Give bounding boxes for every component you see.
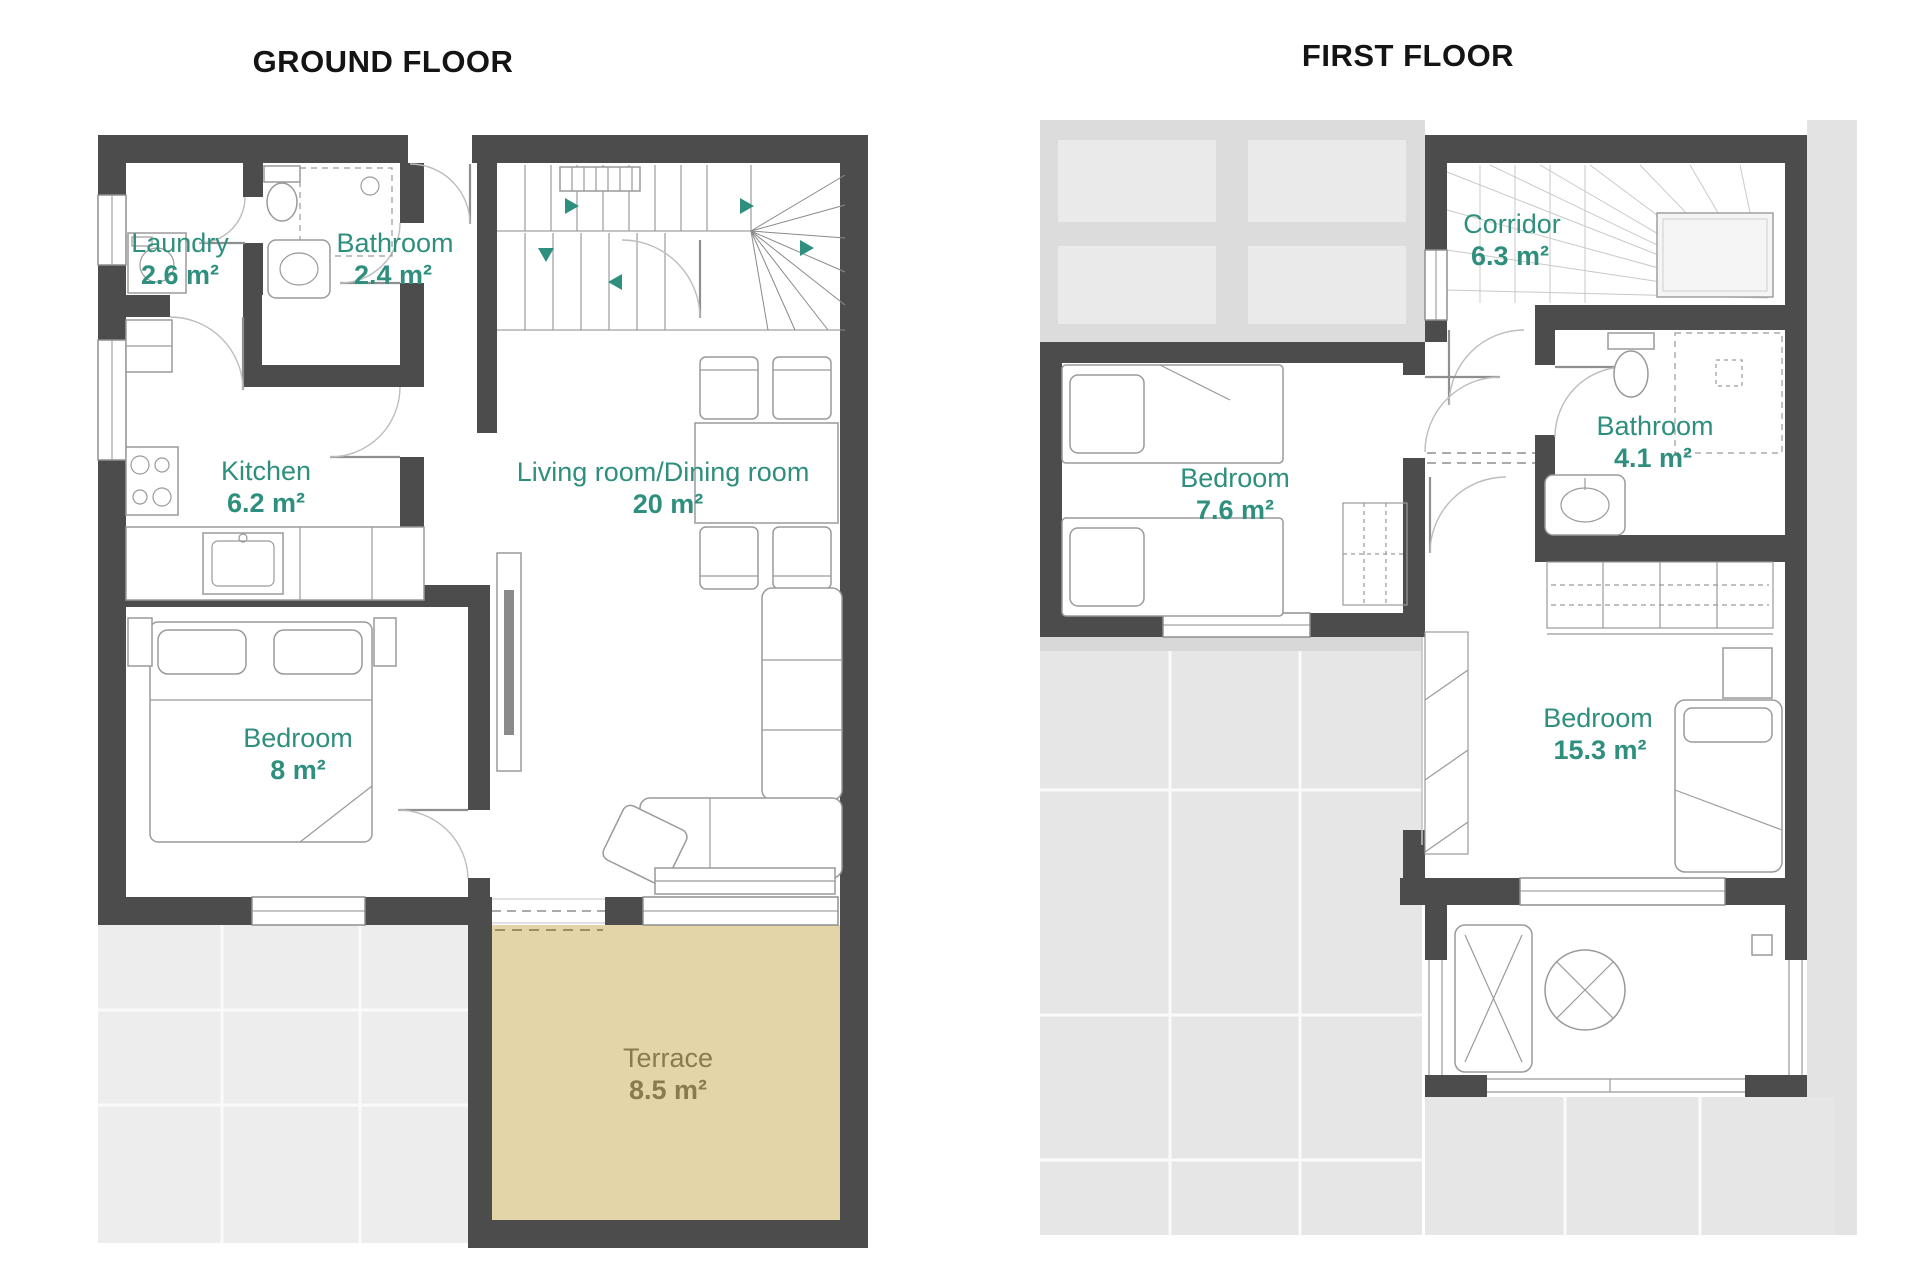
room-label-bathroom-first: Bathroom — [1596, 411, 1713, 441]
first-floor-title: FIRST FLOOR — [1302, 38, 1514, 73]
room-label-bedroom-ground: Bedroom — [243, 723, 353, 753]
floor-plans-canvas: GROUND FLOOR — [0, 0, 1920, 1280]
bedroom-153-closet — [1547, 562, 1773, 634]
ground-floor-stairs — [497, 165, 845, 330]
room-area-corridor: 6.3 m² — [1471, 241, 1549, 271]
room-area-bathroom-ground: 2.4 m² — [354, 260, 432, 290]
room-area-bedroom-153: 15.3 m² — [1553, 735, 1646, 765]
ground-floor-title: GROUND FLOOR — [253, 44, 514, 79]
room-label-bedroom-76: Bedroom — [1180, 463, 1290, 493]
bedroom-76-wardrobe — [1343, 503, 1407, 605]
room-area-laundry: 2.6 m² — [141, 260, 219, 290]
room-area-bedroom-ground: 8 m² — [270, 755, 326, 785]
room-label-bathroom-ground: Bathroom — [336, 228, 453, 258]
room-label-corridor: Corridor — [1463, 209, 1561, 239]
stairs-direction-arrows — [538, 198, 814, 290]
room-label-kitchen: Kitchen — [221, 456, 311, 486]
first-floor-dashed-partition — [1422, 453, 1535, 845]
room-label-bedroom-153: Bedroom — [1543, 703, 1653, 733]
room-label-terrace: Terrace — [623, 1043, 713, 1073]
ground-floor-plan: GROUND FLOOR — [98, 44, 868, 1248]
first-floor-plan: FIRST FLOOR — [1040, 38, 1857, 1235]
room-label-living-dining: Living room/Dining room — [517, 457, 810, 487]
room-area-bathroom-first: 4.1 m² — [1614, 443, 1692, 473]
living-dining-furniture — [497, 357, 842, 894]
room-label-laundry: Laundry — [131, 228, 229, 258]
room-area-living-dining: 20 m² — [633, 489, 704, 519]
radiator — [560, 167, 640, 191]
ground-floor-exterior-paving — [98, 925, 468, 1243]
balcony-furniture — [1455, 925, 1772, 1072]
room-area-bedroom-76: 7.6 m² — [1196, 495, 1274, 525]
bedroom-153-tall-wardrobe — [1425, 632, 1468, 854]
room-area-terrace: 8.5 m² — [629, 1075, 707, 1105]
room-area-kitchen: 6.2 m² — [227, 488, 305, 518]
